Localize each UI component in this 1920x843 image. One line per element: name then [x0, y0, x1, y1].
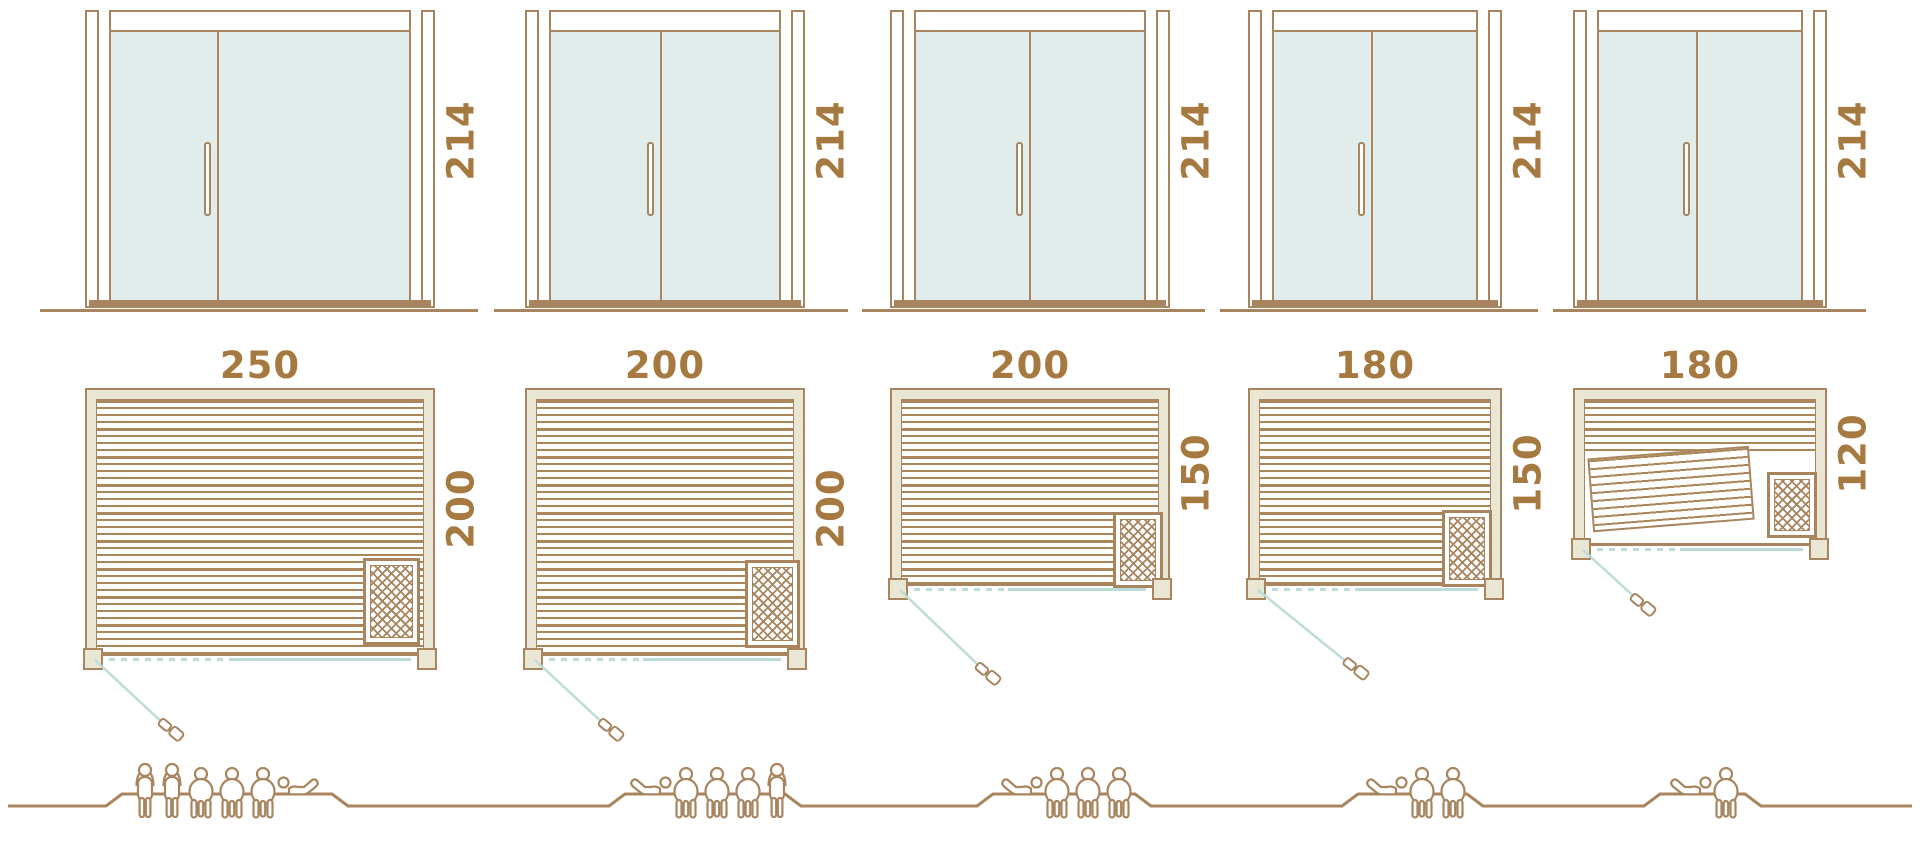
floor-plan-3: 200 150	[890, 388, 1170, 598]
floor-plan-2: 200 200	[525, 388, 805, 668]
door-threshold	[1252, 300, 1498, 308]
door-leaf-divider	[660, 32, 662, 306]
person-seated-icon	[675, 768, 698, 818]
door-threshold	[529, 300, 801, 308]
door-frame-post	[1248, 10, 1262, 308]
ground-line	[1220, 309, 1538, 312]
person-seated-icon	[252, 768, 275, 818]
door-threshold	[89, 300, 431, 308]
capacity-group-1	[137, 764, 318, 818]
glass-door	[1597, 10, 1803, 308]
door-header	[111, 12, 409, 32]
person-reclining-left-icon	[1671, 778, 1710, 795]
plan-depth-dimension: 120	[1827, 388, 1879, 558]
door-frame-post	[1573, 10, 1587, 308]
door-header	[916, 12, 1144, 32]
plan-width-dimension: 250	[85, 347, 435, 384]
floor-plan-4: 180 150	[1248, 388, 1502, 598]
door-height-dimension: 214	[1170, 10, 1222, 310]
floor-plan-5: 180 120	[1573, 388, 1827, 558]
door-jamb	[1809, 538, 1829, 560]
door-frame-post	[890, 10, 904, 308]
person-reclining-left-icon	[631, 778, 670, 795]
glass-door	[109, 10, 411, 308]
door-height-dimension: 214	[805, 10, 857, 310]
ground-line	[1553, 309, 1866, 312]
door-leaf-divider	[1029, 32, 1031, 306]
door-leaf-divider	[1371, 32, 1373, 306]
person-seated-icon	[1077, 768, 1100, 818]
plan-depth-dimension: 200	[805, 388, 857, 668]
floor-plan-1: 250 200	[85, 388, 435, 668]
person-reclining-right-icon	[279, 778, 318, 795]
person-seated-icon	[1411, 768, 1434, 818]
plan-width-dimension: 200	[890, 347, 1170, 384]
person-reclining-left-icon	[1367, 778, 1406, 795]
door-frame-post	[1156, 10, 1170, 308]
heater-icon	[1442, 510, 1492, 587]
door-handle	[204, 142, 211, 216]
door-swing-icon	[1254, 588, 1414, 718]
glass-door	[914, 10, 1146, 308]
person-seated-icon	[1046, 768, 1069, 818]
door-height-dimension: 214	[1827, 10, 1879, 310]
door-elevation-3: 214	[890, 10, 1170, 310]
heater-icon	[363, 558, 420, 645]
plan-width-dimension: 200	[525, 347, 805, 384]
door-height-dimension: 214	[1502, 10, 1554, 310]
ground-line	[862, 309, 1205, 312]
door-frame-post	[85, 10, 99, 308]
heater-icon	[745, 560, 800, 648]
person-seated-icon	[221, 768, 244, 818]
door-leaf-divider	[1696, 32, 1698, 306]
capacity-group-3	[1002, 768, 1130, 818]
door-handle	[1683, 142, 1690, 216]
door-leaf-divider	[217, 32, 219, 306]
plan-width-dimension: 180	[1248, 347, 1502, 384]
capacity-group-4	[1367, 768, 1464, 818]
plan-depth-dimension: 150	[1502, 388, 1554, 598]
heater-icon	[1767, 472, 1817, 538]
person-seated-icon	[737, 768, 760, 818]
door-frame-post	[791, 10, 805, 308]
person-seated-icon	[1715, 768, 1738, 818]
person-standing-icon	[137, 764, 154, 817]
door-swing-icon	[896, 588, 1056, 718]
door-elevation-1: 214	[85, 10, 435, 310]
door-threshold	[1577, 300, 1823, 308]
door-header	[1599, 12, 1801, 32]
capacity-row	[0, 740, 1920, 843]
door-handle	[1016, 142, 1023, 216]
sauna-size-diagram: 214 214 214 214	[0, 0, 1920, 843]
plan-width-dimension: 180	[1573, 347, 1827, 384]
door-handle	[1358, 142, 1365, 216]
door-frame-post	[525, 10, 539, 308]
heater-icon	[1113, 512, 1163, 588]
door-elevation-4: 214	[1248, 10, 1502, 310]
door-jamb	[1152, 578, 1172, 600]
glass-door	[1272, 10, 1478, 308]
glass-front-line	[232, 658, 411, 661]
person-standing-icon	[164, 764, 181, 817]
person-seated-icon	[1108, 768, 1131, 818]
door-handle	[647, 142, 654, 216]
ground-line	[40, 309, 478, 312]
door-jamb	[417, 648, 437, 670]
person-seated-icon	[1442, 768, 1465, 818]
person-standing-icon	[769, 764, 786, 817]
person-reclining-left-icon	[1002, 778, 1041, 795]
ground-line	[494, 309, 848, 312]
door-header	[551, 12, 779, 32]
door-height-dimension: 214	[435, 10, 487, 310]
capacity-group-2	[631, 764, 785, 818]
door-frame-post	[421, 10, 435, 308]
plan-depth-dimension: 150	[1170, 388, 1222, 598]
door-elevation-2: 214	[525, 10, 805, 310]
plan-depth-dimension: 200	[435, 388, 487, 668]
door-swing-icon	[1579, 548, 1709, 658]
person-seated-icon	[706, 768, 729, 818]
door-frame-post	[1813, 10, 1827, 308]
door-threshold	[894, 300, 1166, 308]
door-jamb	[1484, 578, 1504, 600]
door-jamb	[787, 648, 807, 670]
person-seated-icon	[190, 768, 213, 818]
diagonal-bench	[1587, 446, 1754, 532]
door-elevation-5: 214	[1573, 10, 1827, 310]
door-frame-post	[1488, 10, 1502, 308]
glass-door	[549, 10, 781, 308]
door-header	[1274, 12, 1476, 32]
ground-profile-line	[8, 794, 1912, 806]
